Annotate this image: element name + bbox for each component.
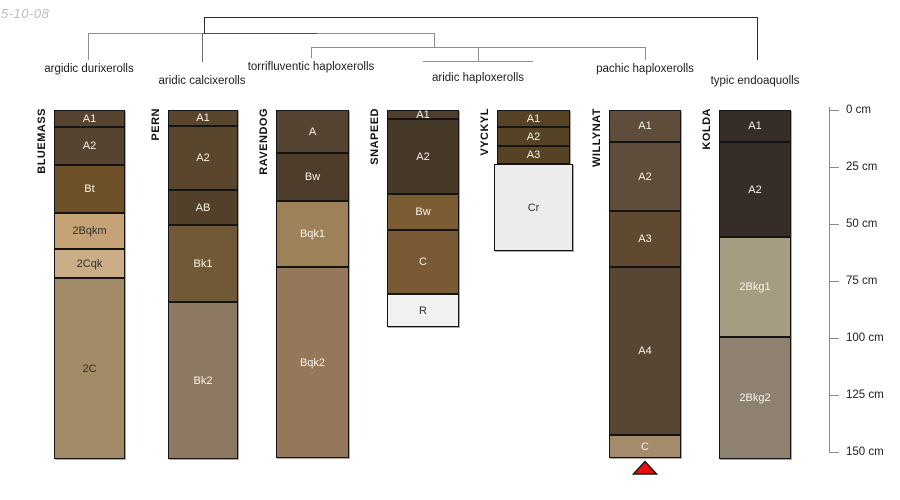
taxon-label: argidic durixerolls: [0, 63, 199, 75]
horizon-block: A2: [719, 142, 791, 237]
horizon-block: C: [387, 230, 459, 294]
horizon-block: A1: [387, 110, 459, 119]
horizon-label: A2: [83, 140, 96, 152]
dendrogram-segment: [311, 47, 312, 58]
dendrogram-segment: [645, 47, 646, 60]
horizon-block: Bw: [387, 194, 459, 230]
dendrogram-segment: [202, 33, 317, 34]
depth-axis-tick: [829, 338, 839, 339]
horizon-block: A1: [609, 110, 681, 142]
horizon-label: A2: [416, 151, 429, 163]
horizon-label: 2C: [82, 363, 96, 375]
depth-axis-tick: [829, 110, 839, 111]
horizon-block: Bw: [276, 153, 349, 201]
horizon-block: A2: [609, 142, 681, 211]
horizon-block: A1: [168, 110, 238, 126]
depth-axis-tick: [829, 281, 839, 282]
horizon-label: AB: [196, 202, 211, 214]
horizon-block: A2: [54, 127, 125, 165]
horizon-label: Bw: [305, 171, 320, 183]
horizon-block: 2Bkg2: [719, 337, 791, 459]
series-name-label: RAVENDOG: [258, 108, 272, 194]
horizon-block: AB: [168, 190, 238, 225]
horizon-block: A: [276, 110, 349, 153]
depth-axis-tick: [829, 395, 839, 396]
horizon-label: Bt: [84, 183, 94, 195]
horizon-block: R: [387, 294, 459, 327]
horizon-label: A2: [748, 184, 761, 196]
depth-axis-line: [829, 107, 830, 453]
horizon-label: A1: [83, 113, 96, 125]
horizon-label: Bqk2: [300, 357, 325, 369]
horizon-label: Bk2: [194, 375, 213, 387]
horizon-label: Bqk1: [300, 228, 325, 240]
horizon-block: 2Bqkm: [54, 213, 125, 249]
depth-axis-tick-label: 25 cm: [846, 160, 877, 174]
horizon-label: A2: [638, 171, 651, 183]
sample-marker-icon: [632, 460, 658, 476]
taxon-label: typic endoaquolls: [645, 75, 865, 87]
horizon-block: 2Bkg1: [719, 237, 791, 337]
horizon-label: A3: [527, 149, 540, 161]
horizon-block: A3: [609, 211, 681, 267]
series-name-label: WILLYNAT: [591, 108, 605, 194]
horizon-block: A1: [719, 110, 791, 142]
dendrogram-segment: [757, 17, 758, 60]
dendrogram-segment: [423, 61, 533, 62]
series-name-label: BLUEMASS: [36, 108, 50, 194]
horizon-label: 2Bkg2: [739, 392, 770, 404]
horizon-block: Bt: [54, 165, 125, 213]
horizon-label: A1: [527, 113, 540, 125]
dendrogram-segment: [434, 33, 435, 47]
depth-axis-tick-label: 100 cm: [846, 331, 884, 345]
horizon-block: A1: [54, 110, 125, 127]
taxon-label: aridic calcixerolls: [92, 75, 312, 87]
depth-axis-tick-label: 0 cm: [846, 103, 871, 117]
horizon-block: Bk2: [168, 302, 238, 459]
horizon-label: C: [641, 441, 649, 453]
horizon-label: A1: [638, 120, 651, 132]
dendrogram-segment: [204, 17, 757, 18]
horizon-label: Cr: [528, 202, 540, 214]
horizon-block: A2: [387, 119, 459, 194]
horizon-block: A2: [497, 127, 570, 146]
dendrogram-segment: [204, 17, 205, 33]
horizon-block: Cr: [494, 164, 573, 251]
horizon-block: A4: [609, 267, 681, 435]
depth-axis-tick-label: 125 cm: [846, 388, 884, 402]
depth-axis-tick-label: 50 cm: [846, 217, 877, 231]
figure-canvas: 5-10-08 argidic durixerollsaridic calcix…: [0, 0, 900, 500]
horizon-block: A3: [497, 146, 570, 164]
horizon-label: 2Bqkm: [72, 225, 106, 237]
series-name-label: KOLDA: [701, 108, 715, 194]
horizon-label: R: [419, 305, 427, 317]
horizon-label: A2: [527, 131, 540, 143]
depth-axis-tick-label: 150 cm: [846, 445, 884, 459]
horizon-block: 2C: [54, 278, 125, 459]
series-name-label: PERN: [150, 108, 164, 194]
taxon-label: pachic haploxerolls: [535, 63, 755, 75]
horizon-label: A1: [748, 120, 761, 132]
horizon-label: A3: [638, 233, 651, 245]
series-name-label: SNAPEED: [369, 108, 383, 194]
horizon-label: 2Bkg1: [739, 281, 770, 293]
dendrogram-segment: [88, 33, 89, 60]
horizon-block: A2: [168, 126, 238, 190]
horizon-label: 2Cqk: [77, 258, 103, 270]
horizon-label: Bk1: [194, 258, 213, 270]
depth-axis-tick-label: 75 cm: [846, 274, 877, 288]
depth-axis-tick: [829, 224, 839, 225]
horizon-block: 2Cqk: [54, 249, 125, 278]
horizon-block: C: [609, 435, 681, 458]
horizon-label: Bw: [415, 206, 430, 218]
depth-axis-tick: [829, 167, 839, 168]
depth-axis-tick: [829, 452, 839, 453]
series-name-label: VYCKYL: [479, 108, 493, 194]
horizon-label: A: [309, 126, 316, 138]
horizon-block: Bqk2: [276, 267, 349, 458]
horizon-block: Bk1: [168, 225, 238, 302]
horizon-label: A1: [196, 112, 209, 124]
dendrogram-segment: [202, 33, 203, 62]
horizon-label: C: [419, 256, 427, 268]
date-watermark: 5-10-08: [1, 6, 49, 21]
horizon-block: A1: [497, 110, 570, 127]
dendrogram-segment: [478, 47, 479, 61]
horizon-label: A4: [638, 345, 651, 357]
horizon-label: A2: [196, 152, 209, 164]
horizon-block: Bqk1: [276, 201, 349, 267]
